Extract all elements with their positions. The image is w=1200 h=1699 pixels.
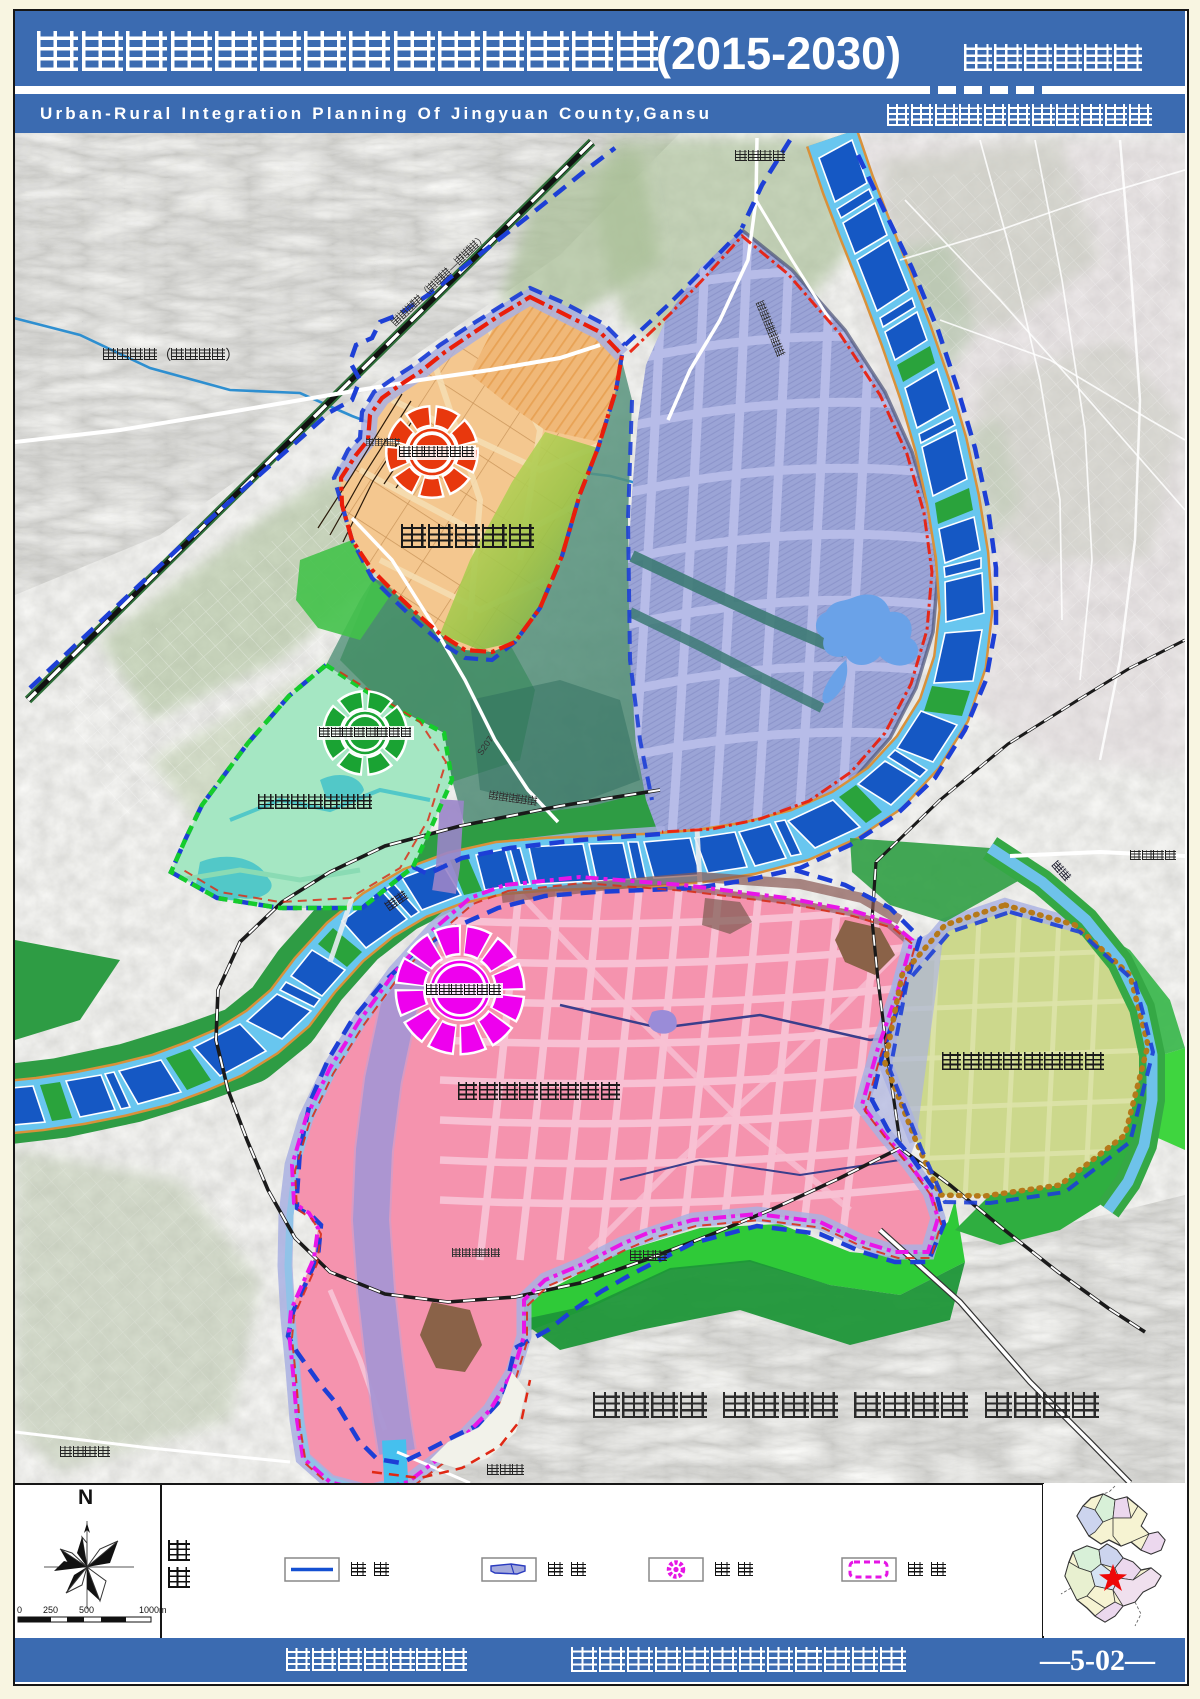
- svg-text:500: 500: [79, 1605, 94, 1615]
- svg-text:N: N: [78, 1487, 93, 1509]
- svg-text:1000m: 1000m: [139, 1605, 167, 1615]
- svg-text:250: 250: [43, 1605, 58, 1615]
- svg-text:0: 0: [17, 1605, 22, 1615]
